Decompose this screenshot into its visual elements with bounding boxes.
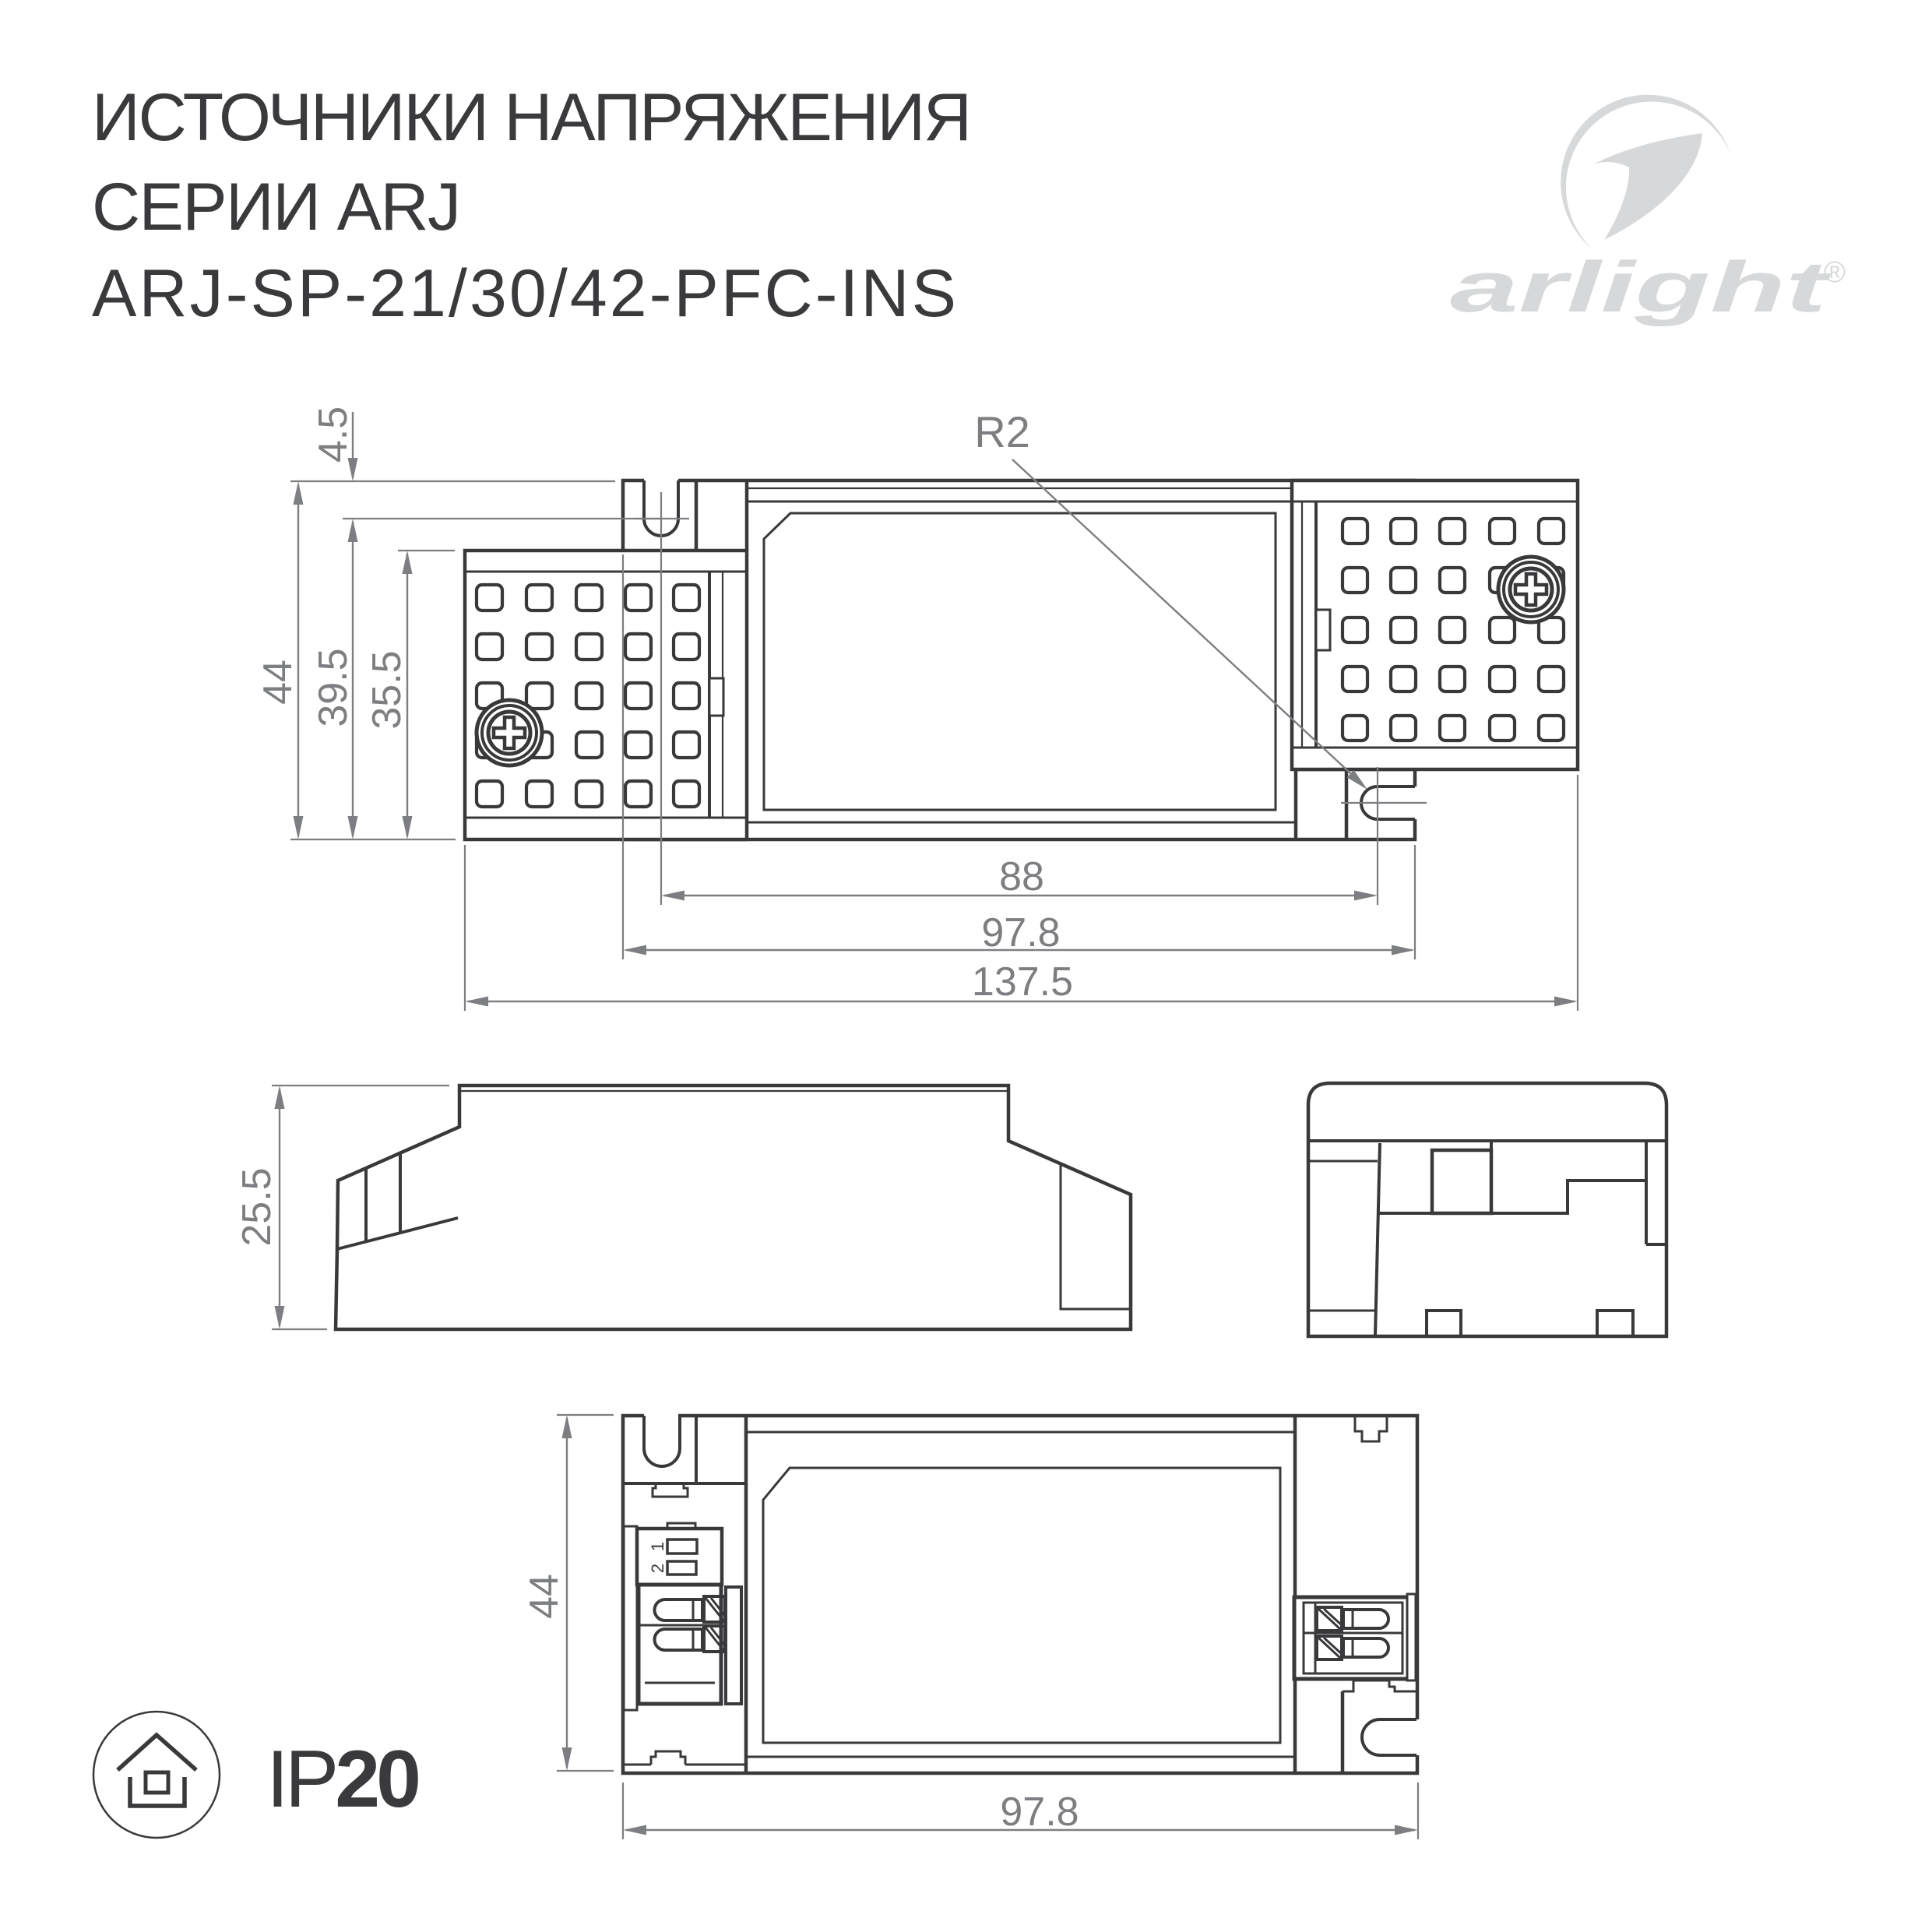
svg-text:arlight: arlight [1450,248,1831,327]
svg-text:R2: R2 [974,407,1030,456]
svg-text:39.5: 39.5 [311,648,356,727]
svg-text:ИСТОЧНИКИ НАПРЯЖЕНИЯ: ИСТОЧНИКИ НАПРЯЖЕНИЯ [92,80,972,155]
svg-text:ARJ-SP-21/30/42-PFC-INS: ARJ-SP-21/30/42-PFC-INS [92,256,956,331]
svg-text:IP20: IP20 [266,1734,418,1825]
svg-text:97.8: 97.8 [1000,1789,1079,1835]
svg-text:2: 2 [648,1564,667,1573]
svg-text:97.8: 97.8 [981,910,1060,955]
svg-text:44: 44 [255,660,301,705]
svg-text:1: 1 [648,1542,667,1551]
svg-text:35.5: 35.5 [364,650,410,729]
svg-text:25.5: 25.5 [234,1167,280,1246]
svg-text:®: ® [1824,256,1846,289]
svg-text:СЕРИИ ARJ: СЕРИИ ARJ [92,170,461,245]
svg-text:44: 44 [522,1574,567,1619]
svg-text:4.5: 4.5 [311,406,356,463]
svg-text:137.5: 137.5 [972,959,1073,1005]
svg-text:88: 88 [999,854,1044,899]
